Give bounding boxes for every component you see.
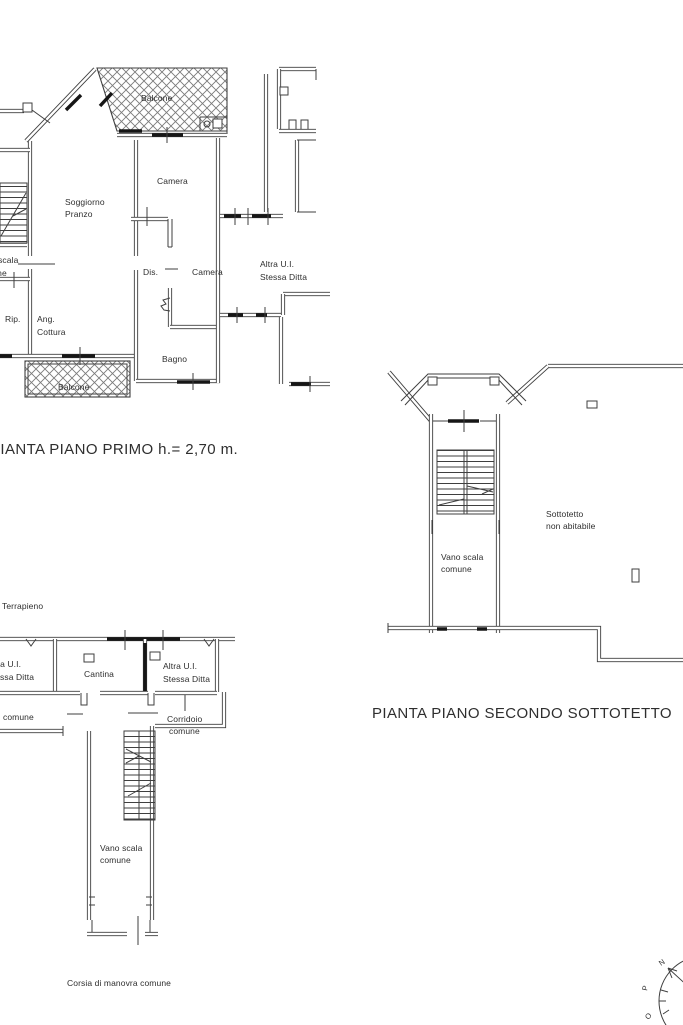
label-rip: Rip.	[5, 314, 21, 324]
plan-piano-secondo-sottotetto: Sottotetto non abitabile Vano scala comu…	[372, 366, 683, 722]
label-altra-ui-right-1: Altra U.I.	[163, 661, 197, 671]
label-soggiorno-1: Soggiorno	[65, 197, 105, 207]
label-sottotetto-1: Sottotetto	[546, 509, 584, 519]
label-ang-cottura-2: Cottura	[37, 327, 66, 337]
skylight	[632, 569, 639, 582]
compass-rose: N P O	[640, 956, 683, 1025]
label-balcone-bottom: Balcone	[58, 382, 90, 392]
plan-piano-primo: Balcone Camera Soggiorno Pranzo Vano sca…	[0, 68, 330, 458]
label-corsia: Corsia di manovra comune	[67, 978, 171, 988]
skylight	[587, 401, 597, 408]
label-altra-ui-right-2: Stessa Ditta	[163, 674, 210, 684]
label-comune-left: comune	[3, 712, 34, 722]
label-camera-mid: Camera	[192, 267, 223, 277]
label-altra-ui-1: Altra U.I.	[260, 259, 294, 269]
floor-plan-document: Balcone Camera Soggiorno Pranzo Vano sca…	[0, 0, 683, 1025]
label-corridoio-1: Corridoio	[167, 714, 203, 724]
plan-piano-interrato: Terrapieno Altra U.I. Stessa Ditta Canti…	[0, 601, 235, 988]
label-altra-ui-2: Stessa Ditta	[260, 272, 307, 282]
label-camera-top: Camera	[157, 176, 188, 186]
label-vano-scala-1: Vano scala	[0, 255, 19, 265]
caption-piano-secondo: PIANTA PIANO SECONDO SOTTOTETTO	[372, 705, 672, 722]
staircase-first-floor	[0, 183, 27, 243]
label-terrapieno: Terrapieno	[2, 601, 43, 611]
label-vano-scala-2: comune	[100, 855, 131, 865]
compass-o: O	[643, 1011, 654, 1022]
label-ang-cottura-1: Ang.	[37, 314, 55, 324]
label-vano-scala-1: Vano scala	[100, 843, 143, 853]
label-vano-scala-1: Vano scala	[441, 552, 484, 562]
label-corridoio-2: comune	[169, 726, 200, 736]
compass-n: N	[657, 957, 667, 967]
label-dis: Dis.	[143, 267, 158, 277]
label-vano-scala-2: comune	[0, 268, 7, 278]
label-vano-scala-2: comune	[441, 564, 472, 574]
north-arrow-icon	[668, 968, 683, 1001]
label-soggiorno-2: Pranzo	[65, 209, 93, 219]
caption-piano-primo: PIANTA PIANO PRIMO h.= 2,70 m.	[0, 441, 238, 458]
staircase-sottotetto	[437, 450, 494, 514]
label-sottotetto-2: non abitabile	[546, 521, 596, 531]
label-balcone-top: Balcone	[141, 93, 173, 103]
label-altra-ui-left-1: Altra U.I.	[0, 659, 21, 669]
label-altra-ui-left-2: Stessa Ditta	[0, 672, 34, 682]
label-bagno: Bagno	[162, 354, 187, 364]
compass-p: P	[640, 985, 650, 992]
floor-plan-drawing: Balcone Camera Soggiorno Pranzo Vano sca…	[0, 0, 683, 1025]
label-cantina: Cantina	[84, 669, 114, 679]
